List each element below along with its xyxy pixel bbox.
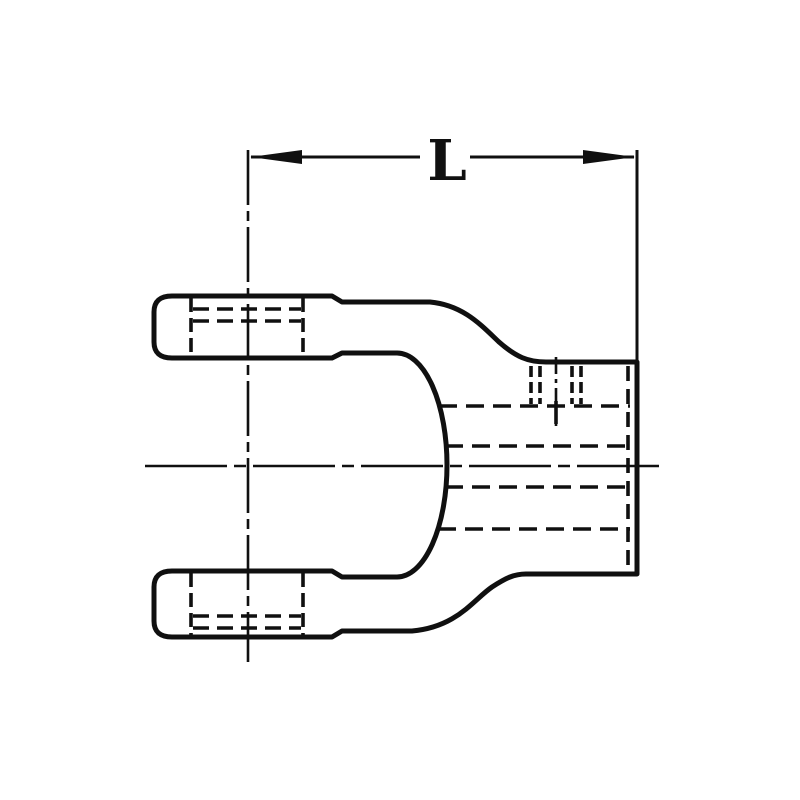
yoke-technical-drawing: L [0, 0, 800, 800]
dimension-label: L [427, 128, 466, 194]
paper-background [0, 0, 800, 800]
drawing-canvas: L [0, 0, 800, 800]
